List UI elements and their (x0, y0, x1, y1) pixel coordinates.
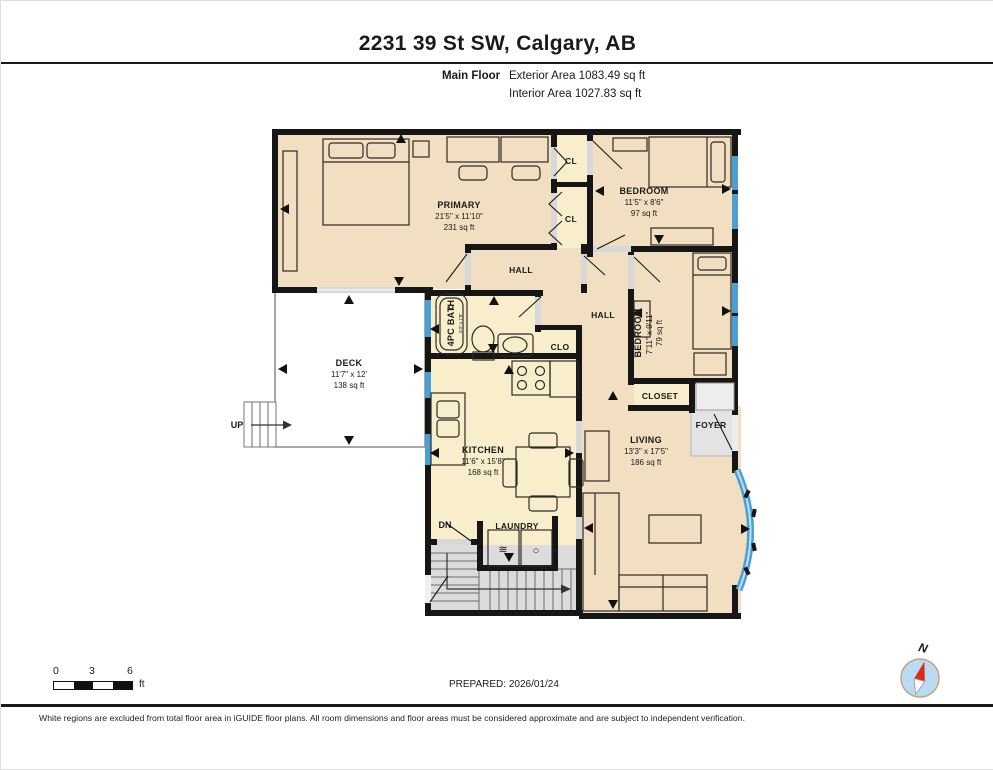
svg-text:79 sq ft: 79 sq ft (655, 319, 664, 346)
window (425, 434, 431, 465)
scale-unit: ft (139, 679, 145, 690)
scale-bar: 0 3 6 ft (51, 665, 211, 693)
window (732, 316, 738, 346)
hall-main-label: HALL (591, 310, 615, 320)
footer-divider (1, 704, 993, 707)
page-title: 2231 39 St SW, Calgary, AB (1, 32, 993, 56)
svg-text:5'3" x 7'8": 5'3" x 7'8" (458, 313, 463, 333)
scale-tick-0: 0 (53, 665, 59, 677)
closet-living-label: CLOSET (642, 391, 679, 401)
dn-label: DN (439, 520, 452, 530)
svg-text:138 sq ft: 138 sq ft (334, 381, 365, 390)
hall-upper-label: HALL (509, 265, 533, 275)
foyer-closet-icon (696, 383, 734, 410)
svg-text:11'7" x 12': 11'7" x 12' (331, 370, 367, 379)
floor-label: Main Floor (442, 70, 500, 82)
svg-text:4PC BATH: 4PC BATH (446, 300, 456, 347)
svg-text:11'5" x 8'6": 11'5" x 8'6" (625, 198, 664, 207)
closet1-label: CL (565, 156, 577, 166)
prepared-date: PREPARED: 2026/01/24 (449, 679, 559, 690)
floor-plan: ≋ ○ PRI (226, 121, 776, 641)
scale-tick-6: 6 (127, 665, 133, 677)
svg-text:168 sq ft: 168 sq ft (468, 468, 499, 477)
window (732, 156, 738, 190)
living-label: LIVING (630, 435, 662, 445)
window (425, 300, 431, 337)
svg-text:13'3" x 17'5": 13'3" x 17'5" (624, 447, 668, 456)
compass-n-label: N (917, 640, 929, 656)
kitchen-label: KITCHEN (462, 445, 504, 455)
clo-label: CLO (551, 342, 570, 352)
exterior-area-text: Exterior Area 1083.49 sq ft (509, 70, 645, 82)
svg-text:11'6" x 15'8": 11'6" x 15'8" (461, 457, 504, 466)
laundry-label: LAUNDRY (495, 521, 538, 531)
dryer-icon: ○ (533, 545, 540, 557)
svg-text:186 sq ft: 186 sq ft (631, 458, 662, 467)
window (425, 372, 431, 398)
primary-label: PRIMARY (437, 200, 480, 210)
up-label: UP (231, 420, 244, 430)
floorplan-page: 2231 39 St SW, Calgary, AB Main Floor Ex… (0, 0, 993, 770)
interior-area-text: Interior Area 1027.83 sq ft (509, 88, 641, 100)
closet2-label: CL (565, 214, 577, 224)
svg-text:21'5" x 11'10": 21'5" x 11'10" (435, 212, 483, 221)
svg-text:97 sq ft: 97 sq ft (631, 209, 658, 218)
compass: N (886, 639, 956, 705)
foyer-label: FOYER (696, 420, 727, 430)
bedroom2-label: BEDROOM (619, 186, 668, 196)
svg-text:BEDROOM: BEDROOM (633, 308, 643, 357)
disclaimer-text: White regions are excluded from total fl… (39, 713, 969, 723)
deck-label: DECK (336, 358, 363, 368)
scale-bar-segments (53, 681, 133, 690)
room-fills (244, 132, 751, 619)
svg-text:231 sq ft: 231 sq ft (444, 223, 475, 232)
window (732, 283, 738, 313)
scale-tick-3: 3 (89, 665, 95, 677)
hall-main-room (579, 251, 634, 431)
header-divider (1, 62, 993, 64)
svg-text:7'11" x 9'11": 7'11" x 9'11" (645, 311, 654, 354)
window (732, 194, 738, 229)
